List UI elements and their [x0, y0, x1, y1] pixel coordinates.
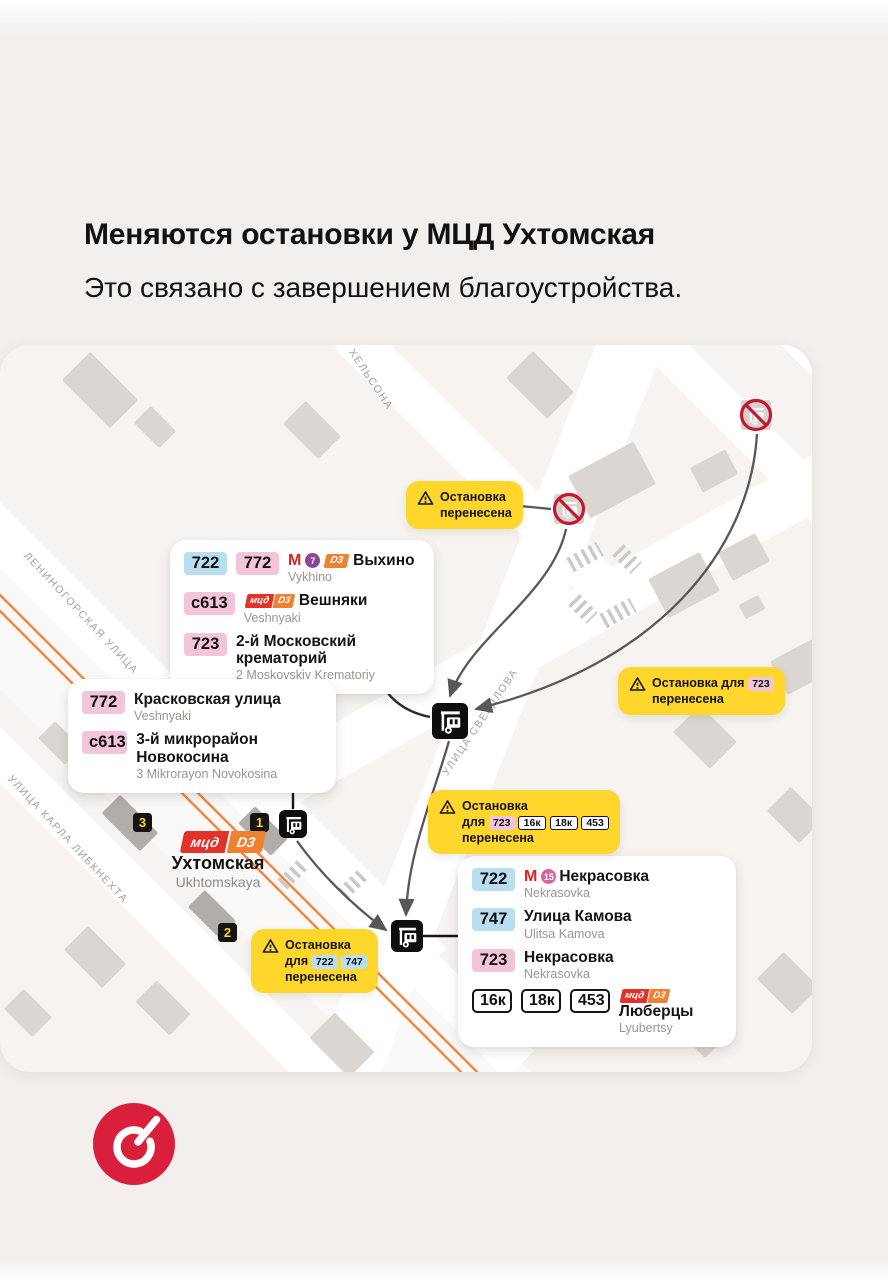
stop-title-latin: Nekrasovka [524, 967, 614, 981]
route-row: 722 М 15 Некрасовка Nekrasovka [472, 868, 722, 900]
route-badge: 772 [236, 552, 279, 575]
metro-line-15-icon: 15 [541, 869, 556, 884]
building [62, 352, 138, 428]
stop-title: Выхино [353, 552, 414, 569]
warning-stop-moved-723-16k-18k-453: Остановка для 723 16к 18к 453 перенесена [428, 790, 620, 854]
warning-icon [439, 799, 456, 815]
stop-title-latin: Nekrasovka [524, 886, 649, 900]
building [283, 401, 341, 459]
map-marker-2: 2 [218, 923, 237, 942]
top-fade [0, 0, 888, 36]
bus-stop-icon-station [279, 810, 307, 838]
infographic-root: Меняются остановки у МЦД Ухтомская Это с… [0, 0, 888, 1280]
warning-icon [262, 938, 279, 954]
route-badge: 723 [184, 633, 227, 656]
stop-title-latin: Lyubertsy [619, 1021, 722, 1035]
route-badge: 723 [748, 677, 774, 691]
building [134, 406, 176, 448]
stop-title: 2-й Московский крематорий [236, 633, 420, 668]
warning-text: Остановкаперенесена [440, 489, 512, 521]
warning-stop-moved-1: Остановкаперенесена [406, 481, 523, 529]
stop-title: Красковская улица [134, 691, 281, 708]
route-row: 722 772 М 7 D3 Выхино Vykhino [184, 552, 420, 584]
route-row: 723 Некрасовка Nekrasovka [472, 949, 722, 981]
building [690, 449, 738, 493]
route-row: 747 Улица Камова Ulitsa Kamova [472, 908, 722, 940]
building [757, 952, 812, 1014]
bus-stop-icon-new-1 [432, 703, 468, 739]
station-name-latin: Ukhtomskaya [138, 874, 298, 890]
route-badge: 747 [472, 908, 515, 931]
route-badge: 722 [184, 552, 227, 575]
warning-text: Остановка для 723 16к 18к 453 перенесена [462, 798, 609, 846]
route-row: 772 Красковская улица Veshnyaki [82, 691, 322, 723]
d3-icon: D3 [324, 554, 350, 568]
building [135, 980, 190, 1035]
warning-icon [417, 490, 434, 506]
stop-title-latin: Vykhino [288, 570, 415, 584]
station-name: Ухтомская [138, 853, 298, 874]
stop-title: Улица Камова [524, 908, 632, 925]
stop-title: 3-й микрорайон Новокосина [136, 731, 322, 766]
route-badge: с613 [184, 592, 235, 615]
route-badge: 772 [82, 691, 125, 714]
map-marker-3: 3 [133, 813, 152, 832]
stop-title-latin: Veshnyaki [134, 709, 281, 723]
stop-title: Люберцы [619, 1003, 693, 1020]
route-row: с613 3-й микрорайон Новокосина 3 Mikrora… [82, 731, 322, 781]
bus-stop-icon-new-2 [391, 920, 423, 952]
callout-nekrasovka: 722 М 15 Некрасовка Nekrasovka 747 Улица… [458, 856, 736, 1047]
page-subtitle: Это связано с завершением благоустройств… [84, 272, 682, 304]
route-badge: 723 [472, 949, 515, 972]
stop-title-latin: 3 Mikrorayon Novokosina [136, 767, 322, 781]
route-badge: 16к [472, 989, 512, 1013]
d3-badge-text: D3 [225, 831, 267, 853]
metro-icon: М [524, 869, 537, 885]
route-row: 723 2-й Московский крематорий 2 Moskovsk… [184, 633, 420, 683]
stop-title: Некрасовка [524, 949, 614, 966]
stop-title: Некрасовка [559, 868, 649, 885]
building [64, 926, 126, 988]
route-badge: с613 [82, 731, 127, 754]
route-badge: 453 [581, 816, 609, 830]
building [739, 595, 766, 619]
map-marker-1: 1 [250, 813, 269, 832]
mcd-d3-icon: мцдD3 [620, 989, 671, 1003]
route-badge: 747 [341, 955, 367, 969]
cancelled-stop-icon-1 [554, 494, 584, 524]
page-title: Меняются остановки у МЦД Ухтомская [84, 218, 655, 252]
route-badge: 723 [489, 816, 515, 830]
mcd-d3-icon: мцдD3 [244, 594, 295, 608]
route-badge: 722 [312, 955, 338, 969]
warning-stop-moved-723: Остановка для 723перенесена [618, 667, 785, 715]
building [4, 989, 52, 1037]
route-badge: 18к [521, 989, 561, 1013]
route-badge: 18к [550, 816, 578, 830]
route-badge: 722 [472, 868, 515, 891]
warning-text: Остановка для 723перенесена [652, 675, 774, 707]
moscow-transport-logo [93, 1103, 175, 1185]
stop-title: Вешняки [299, 592, 367, 609]
building [506, 351, 574, 419]
route-badge: 453 [570, 989, 610, 1013]
route-row: 16к 18к 453 мцдD3 Люберцы Lyubertsy [472, 989, 722, 1035]
metro-icon: М [288, 553, 301, 569]
warning-stop-moved-722-747: Остановка для 722 747 перенесена [251, 929, 378, 993]
callout-vykhino: 722 772 М 7 D3 Выхино Vykhino с613 мцдD3 [170, 540, 434, 694]
route-badge: 16к [518, 816, 546, 830]
stop-title-latin: Ulitsa Kamova [524, 927, 632, 941]
warning-text: Остановка для 722 747 перенесена [285, 937, 367, 985]
building [767, 787, 812, 844]
bottom-fade [0, 1258, 888, 1280]
callout-kraskovskaya: 772 Красковская улица Veshnyaki с613 3-й… [68, 679, 336, 793]
mcd-d3-badge: мцдD3 [180, 831, 267, 853]
stop-title-latin: Veshnyaki [244, 611, 368, 625]
cancelled-stop-icon-2 [741, 400, 771, 430]
metro-line-7-icon: 7 [305, 553, 320, 568]
warning-icon [629, 676, 646, 692]
route-row: с613 мцдD3 Вешняки Veshnyaki [184, 592, 420, 624]
mcd-badge-text: мцд [180, 831, 230, 853]
map-card: ЛЕНИНОГОРСКАЯ УЛИЦА УЛИЦА КАРЛА ЛИБКНЕХТ… [0, 345, 812, 1072]
